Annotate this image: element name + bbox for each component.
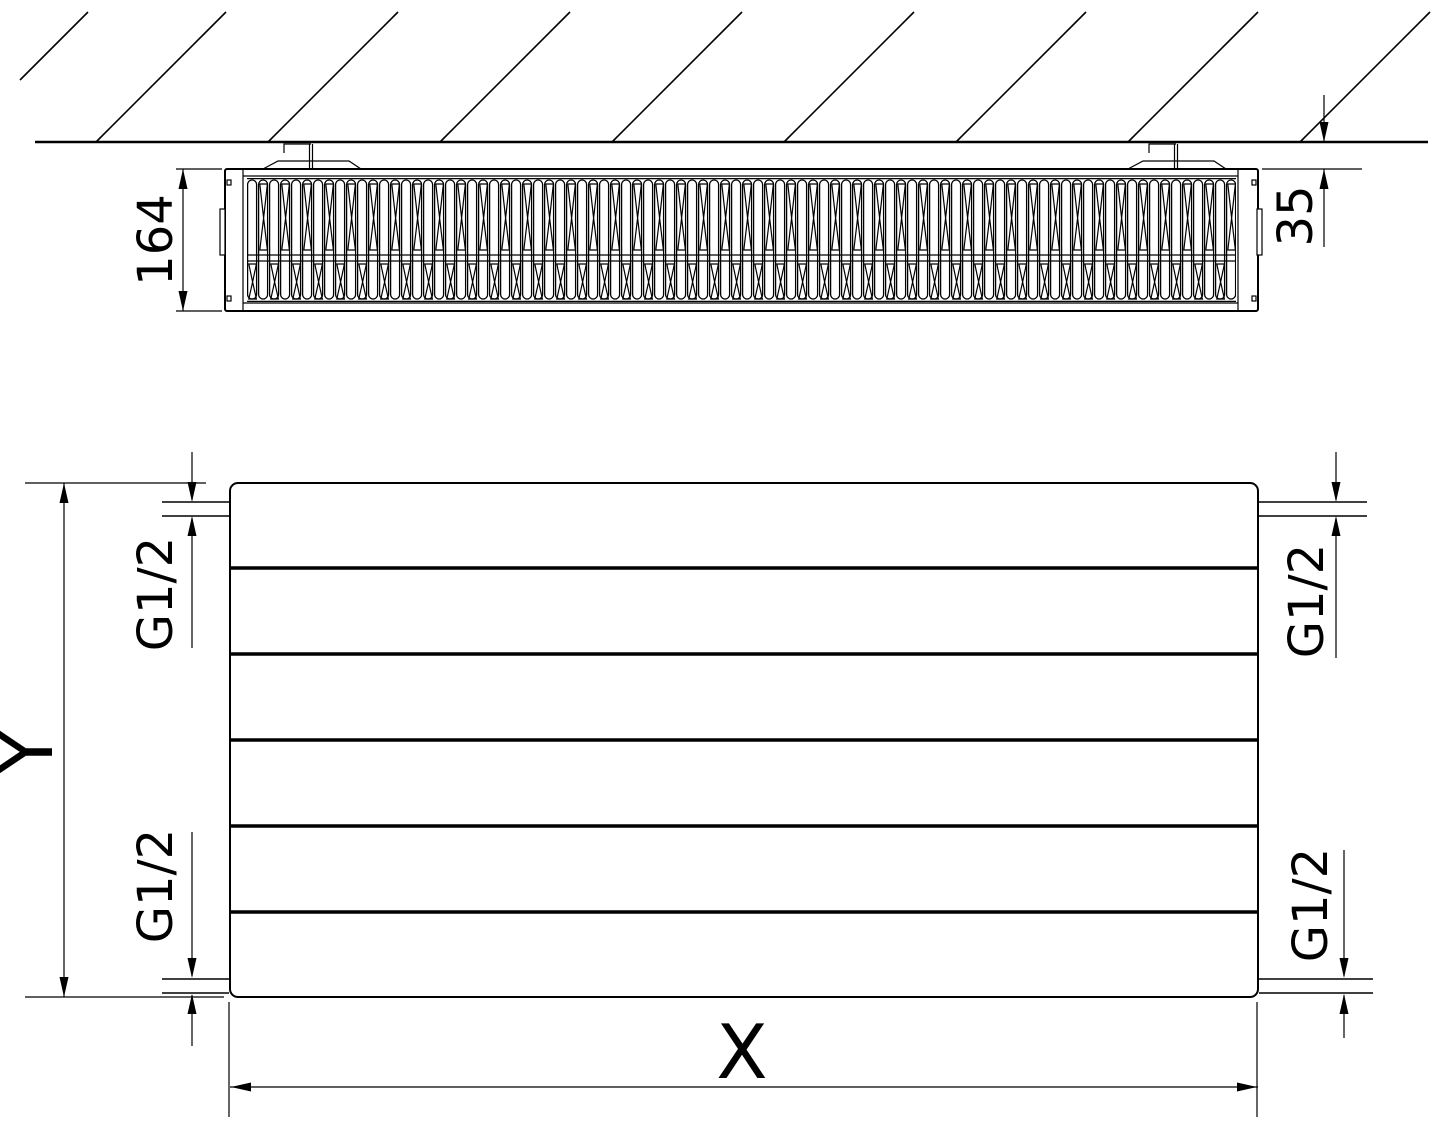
radiator-top-view: [220, 169, 1262, 311]
wall-bracket-right: [1128, 144, 1226, 169]
dim-label-g12-bottom-right: G1/2: [1283, 848, 1339, 962]
dim-label-y: Y: [0, 729, 70, 776]
convector-fins: [247, 178, 1236, 302]
dimension-g12-bottom-left: G1/2: [128, 829, 197, 1046]
radiator-technical-drawing: 164 35 Y X: [0, 0, 1441, 1125]
dimension-35: 35: [1262, 95, 1362, 247]
dim-label-35: 35: [1268, 185, 1324, 246]
pipe-stub-top-right: [1259, 502, 1367, 516]
dimension-x: X: [229, 1002, 1258, 1117]
pipe-stub-bottom-right: [1259, 979, 1373, 993]
dim-label-g12-top-left: G1/2: [128, 537, 184, 651]
dimension-g12-bottom-right: G1/2: [1283, 848, 1349, 1038]
dim-label-g12-bottom-left: G1/2: [128, 829, 184, 943]
dimension-g12-top-right: G1/2: [1279, 452, 1341, 658]
dimension-y: Y: [0, 483, 224, 997]
wall-hatching: [20, 12, 1430, 142]
side-tab-right: [1257, 209, 1262, 255]
pipe-stub-top-left: [162, 502, 229, 516]
wall-bracket-left: [263, 144, 361, 169]
dimension-164: 164: [128, 169, 222, 311]
radiator-front-view: [162, 483, 1373, 997]
dim-label-g12-top-right: G1/2: [1279, 544, 1335, 658]
dimension-g12-top-left: G1/2: [128, 452, 197, 651]
technical-drawing-page: 164 35 Y X: [0, 0, 1441, 1125]
dim-label-164: 164: [128, 194, 184, 286]
dim-label-x: X: [716, 1008, 767, 1096]
side-tab-left: [220, 209, 225, 255]
pipe-stub-bottom-left: [162, 979, 229, 993]
